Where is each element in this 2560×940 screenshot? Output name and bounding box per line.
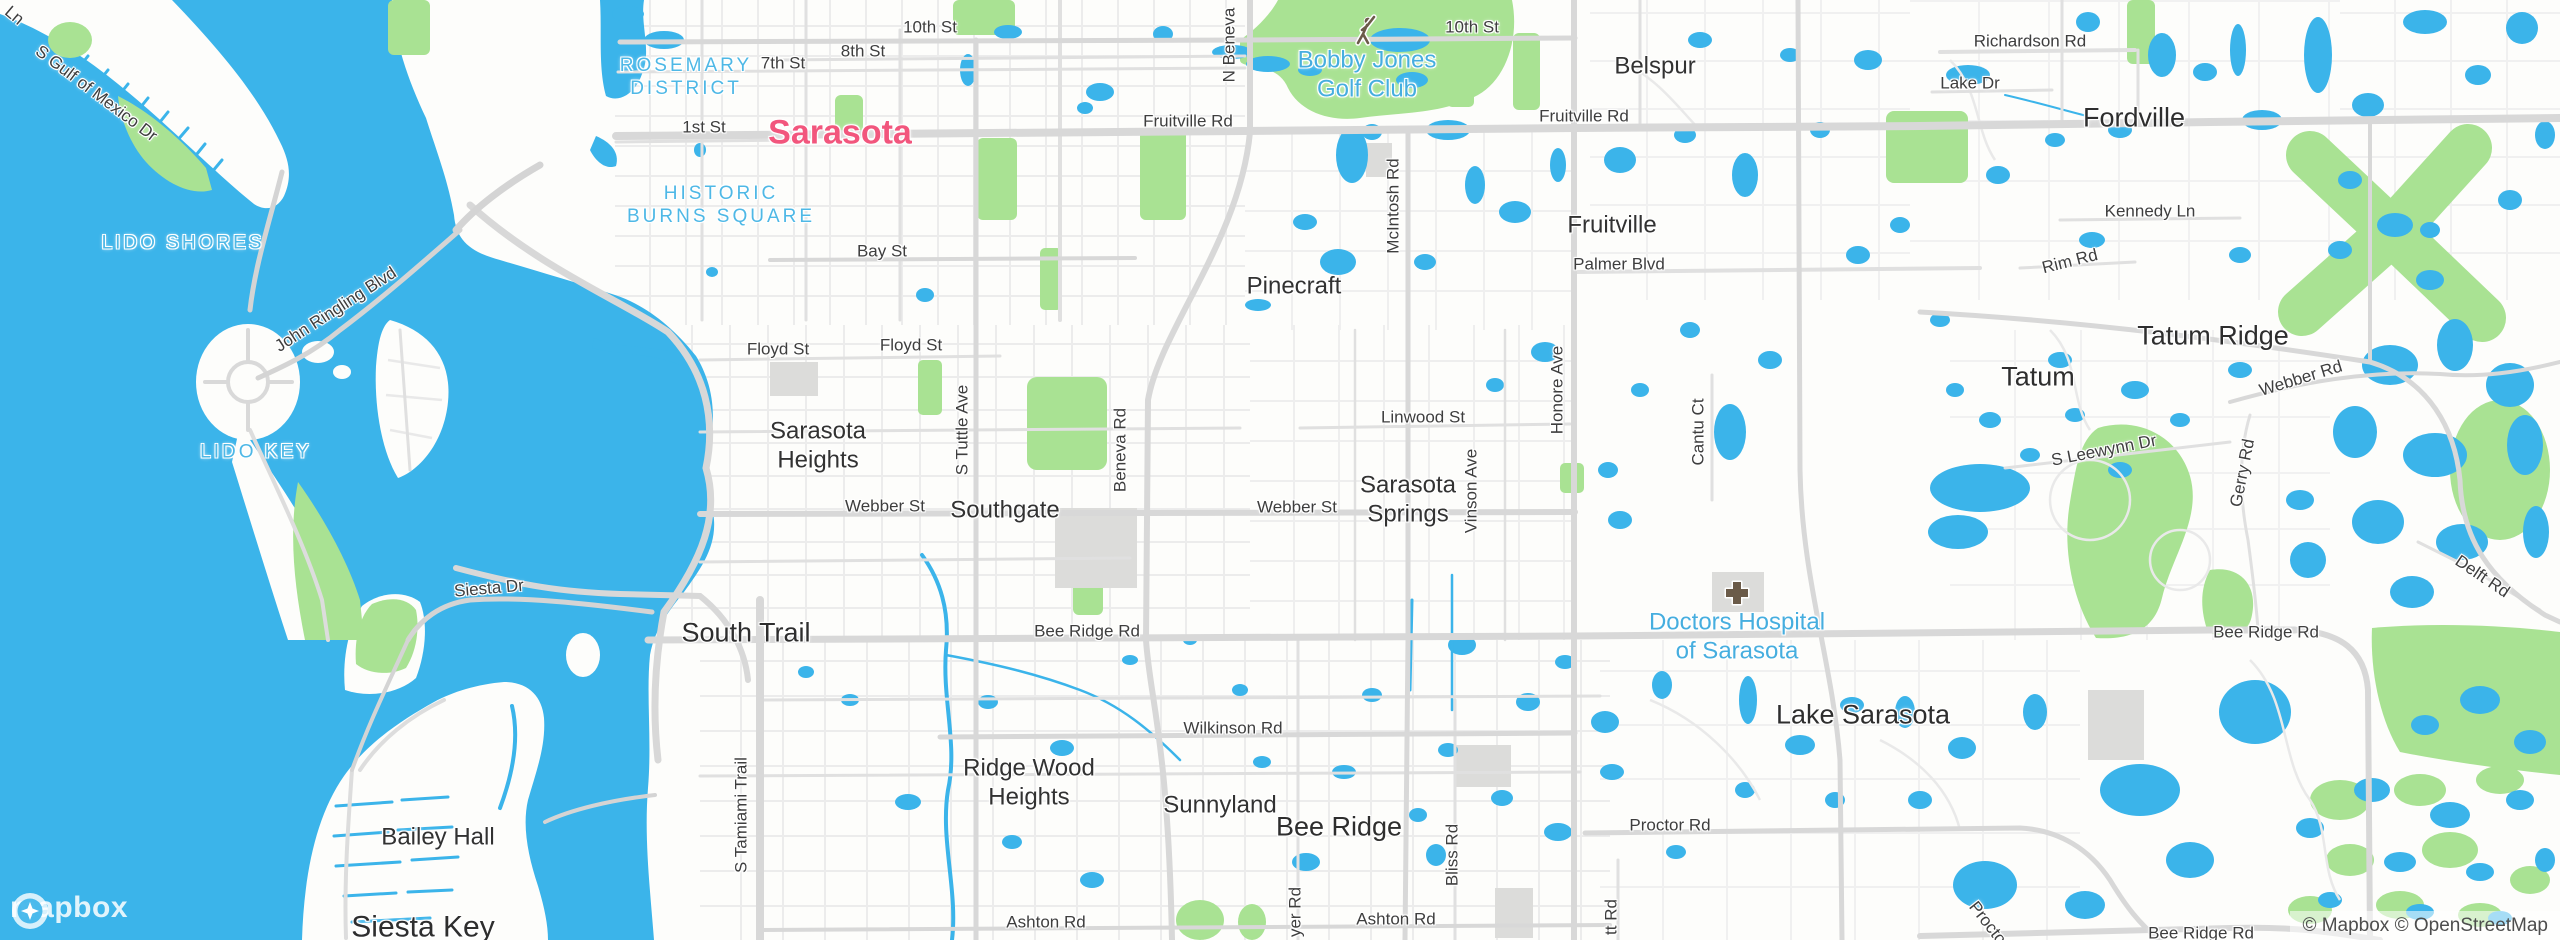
- hospital-icon: [1726, 582, 1748, 604]
- golfer-icon: [1358, 17, 1374, 43]
- mapbox-logo-icon: [10, 891, 50, 931]
- attribution-text: © Mapbox © OpenStreetMap: [2302, 915, 2548, 937]
- attribution-bar[interactable]: © Mapbox © OpenStreetMap: [2290, 911, 2560, 940]
- mapbox-logo[interactable]: mapbox: [10, 891, 128, 925]
- map-canvas[interactable]: LnS Gulf of Mexico DrJohn Ringling Blvd1…: [0, 0, 2560, 940]
